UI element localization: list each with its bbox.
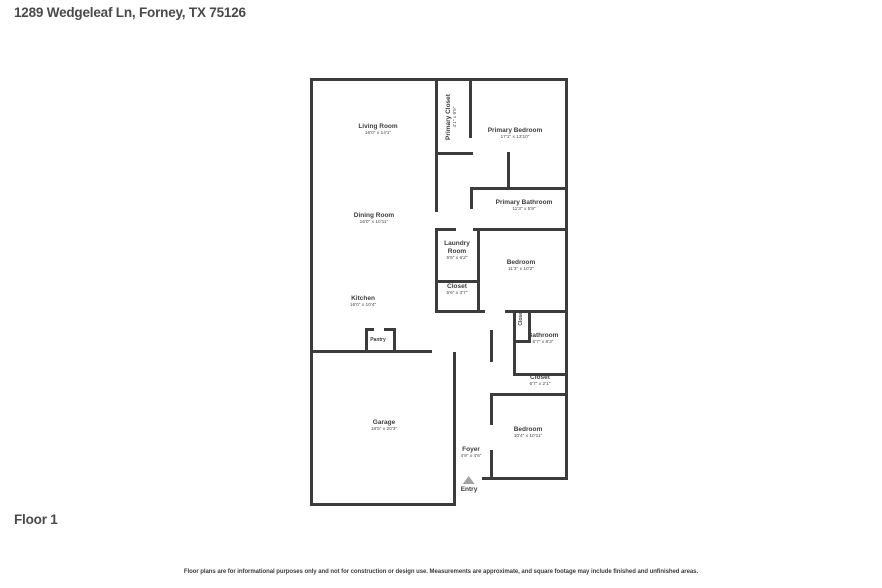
room-name: Closet <box>530 374 551 382</box>
wall-bedroom-bottom <box>482 477 568 480</box>
room-dims: 11'3" x 5'9" <box>496 207 553 213</box>
room-name: Bedroom <box>514 426 543 434</box>
room-label-dining-room: Dining Room 16'0" x 10'11" <box>354 212 394 226</box>
room-name: Living Room <box>358 123 397 131</box>
wall-exterior-right <box>565 78 568 480</box>
wall-garage-right <box>453 352 456 506</box>
room-name: Dining Room <box>354 212 394 220</box>
room-dims: 18'5" x 20'3" <box>371 427 397 433</box>
wall-laundry-top-left <box>435 228 456 231</box>
room-name: Foyer <box>461 446 482 454</box>
room-label-closet-hall: Closet 6'7" x 2'1" <box>530 374 551 388</box>
disclaimer-text: Floor plans are for informational purpos… <box>0 569 882 575</box>
wall-exterior-left <box>310 78 313 506</box>
room-name: Garage <box>371 419 397 427</box>
room-dims: 16'0" x 14'1" <box>358 131 397 137</box>
wall-bedroom-left <box>477 231 480 313</box>
room-label-bathroom: Bathroom 6'7" x 8'3" <box>528 332 559 346</box>
entry-arrow-icon <box>463 476 475 484</box>
room-label-bedroom-middle: Bedroom 11'3" x 10'2" <box>507 259 536 273</box>
room-name: Kitchen <box>350 295 376 303</box>
wall-hall-left-upper <box>435 155 438 212</box>
room-name: Primary Bedroom <box>488 127 543 135</box>
room-name: Laundry Room <box>439 240 475 256</box>
room-label-laundry-room: Laundry Room 5'6" x 6'2" <box>439 240 475 262</box>
floor-label: Floor 1 <box>14 512 58 527</box>
wall-foyer-right-upper <box>490 393 493 425</box>
floor-plan: Living Room 16'0" x 14'1" Primary Closet… <box>310 78 568 510</box>
wall-foyer-right-lower <box>490 450 493 480</box>
room-dims: 10'4" x 10'11" <box>514 434 543 440</box>
wall-garage-bottom <box>310 503 456 506</box>
room-dims: 4'9" x 4'6" <box>461 454 482 460</box>
room-label-garage: Garage 18'5" x 20'3" <box>371 419 397 433</box>
wall-primary-closet-right <box>469 78 472 138</box>
room-dims: 17'1" x 13'10" <box>488 135 543 141</box>
wall-laundry-left <box>435 228 438 313</box>
room-label-living-room: Living Room 16'0" x 14'1" <box>358 123 397 137</box>
room-dims: 16'0" x 10'4" <box>350 303 376 309</box>
page-title: 1289 Wedgeleaf Ln, Forney, TX 75126 <box>14 5 246 20</box>
wall-primary-bedroom-entry <box>507 152 510 190</box>
room-name: Primary Closet <box>445 94 453 140</box>
entry-marker: Entry <box>461 476 478 493</box>
room-label-kitchen: Kitchen 16'0" x 10'4" <box>350 295 376 309</box>
wall-hall-stub <box>490 330 493 362</box>
wall-primary-closet-bottom <box>435 152 473 155</box>
room-label-primary-closet: Primary Closet 4'1" x 9'5" <box>445 94 459 140</box>
room-name: Primary Bathroom <box>496 199 553 207</box>
wall-hall-top-right <box>505 310 568 313</box>
room-label-pantry: Pantry <box>370 337 386 343</box>
room-label-foyer: Foyer 4'9" x 4'6" <box>461 446 482 460</box>
room-dims: 11'3" x 10'2" <box>507 267 536 273</box>
room-name: Closet <box>447 283 468 291</box>
room-label-primary-bedroom: Primary Bedroom 17'1" x 13'10" <box>488 127 543 141</box>
room-name: Pantry <box>370 337 386 343</box>
wall-primary-bathroom-top <box>470 187 568 190</box>
room-name: Closet <box>518 310 524 325</box>
wall-primary-closet-left <box>435 78 438 155</box>
room-label-closet-laundry: Closet 5'6" x 3'7" <box>447 283 468 297</box>
room-dims: 5'6" x 6'2" <box>439 256 475 262</box>
room-name: Bathroom <box>528 332 559 340</box>
room-dims: 4'1" x 9'5" <box>453 94 459 140</box>
wall-bath-closet-left <box>513 310 516 376</box>
wall-garage-top <box>310 350 432 353</box>
wall-bedroom-top <box>490 393 568 396</box>
room-label-bedroom-bottom: Bedroom 10'4" x 10'11" <box>514 426 543 440</box>
floorplan-page: 1289 Wedgeleaf Ln, Forney, TX 75126 Livi… <box>0 0 882 588</box>
room-dims: 16'0" x 10'11" <box>354 220 394 226</box>
room-label-primary-bathroom: Primary Bathroom 11'3" x 5'9" <box>496 199 553 213</box>
wall-primary-bathroom-left <box>470 187 473 209</box>
wall-bathroom-bedroom-top <box>473 228 568 231</box>
entry-label: Entry <box>461 486 478 493</box>
room-name: Bedroom <box>507 259 536 267</box>
room-dims: 5'6" x 3'7" <box>447 291 468 297</box>
room-dims: 6'7" x 2'1" <box>530 382 551 388</box>
wall-exterior-top <box>310 78 568 81</box>
room-label-closet-niche: Closet <box>518 310 524 325</box>
room-dims: 6'7" x 8'3" <box>528 340 559 346</box>
